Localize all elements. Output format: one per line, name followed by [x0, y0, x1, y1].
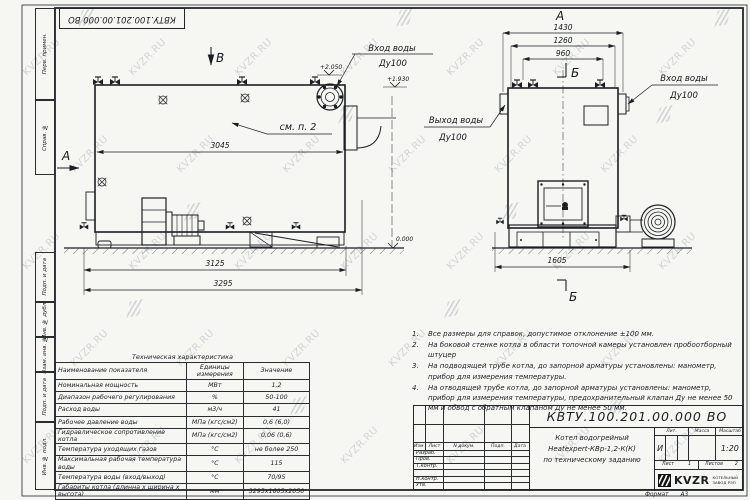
base-skid	[96, 232, 344, 248]
spec-row: Номинальная мощностьМВт1,2	[56, 380, 310, 392]
lug-icon	[155, 92, 172, 109]
margin-box-sprav-n: Справ. №	[35, 100, 55, 175]
lit-value: И	[655, 436, 666, 460]
elev-0000: 0.000	[396, 236, 413, 243]
title-block: Изм. Лист N докум. Подп. Дата Разраб. Пр…	[413, 405, 743, 490]
dim-1260: 1260	[553, 36, 572, 45]
spec-row: Диапазон рабочего регулирования%50-100	[56, 392, 310, 404]
margin-box-inv-dubl: Инв. № дубл.	[35, 302, 55, 337]
spec-row: Рабочее давление водыМПа (кгс/см2)0,6 (6…	[56, 416, 310, 428]
valve-icon	[93, 77, 103, 85]
burner-unit	[142, 198, 204, 245]
dim-3045: 3045	[210, 141, 229, 150]
valve-icon	[512, 80, 522, 88]
margin-box-inv-podl: Инв. № подл.	[35, 422, 55, 490]
corner-stamp-number: КВТУ.100.201.00.000 ВО	[68, 14, 176, 24]
callout-see-p2: см. п. 2	[280, 122, 317, 133]
valve-icon	[80, 223, 89, 230]
dim-1605: 1605	[547, 256, 566, 265]
section-label-b-top: Б	[571, 66, 579, 80]
inlet-dn-front: Ду100	[669, 91, 698, 101]
sampling-port	[584, 106, 608, 125]
format-label: ФорматА3	[645, 492, 700, 498]
title-block-right-section: Лит. Масса Масштаб И 1:20 Лист1 Листов2 …	[655, 428, 744, 491]
elev-1930: +1.930	[387, 76, 409, 83]
inlet-label-front: Вход воды	[660, 74, 708, 84]
boiler-body-side	[95, 85, 345, 232]
inlet-label-side: Вход воды	[368, 44, 416, 54]
valve-icon	[237, 77, 247, 85]
section-label-a: А	[61, 149, 70, 163]
inlet-flange	[317, 84, 343, 110]
valve-icon	[595, 80, 605, 88]
margin-box-podp-data-2: Подп. и дата	[35, 372, 55, 422]
corner-stamp: КВТУ.100.201.00.000 ВО	[59, 8, 185, 29]
inlet-flange	[618, 94, 626, 114]
spec-row: Температура воды (вход/выход)°С70/95	[56, 471, 310, 483]
dim-3295: 3295	[213, 279, 232, 288]
company-logo: KVZR КОТЕЛЬНЫЙ ЗАВОД РЭП	[655, 470, 744, 490]
valve-icon	[528, 80, 538, 88]
sheet-row: Лист1 Листов2	[655, 461, 744, 470]
scale-value: 1:20	[716, 436, 744, 460]
valve-icon	[110, 77, 120, 85]
dim-1430: 1430	[553, 23, 572, 32]
margin-box-perv-primen: Перв. примен.	[35, 8, 55, 100]
mass-value	[689, 436, 716, 460]
note-item: 2.На боковой стенке котла в области топо…	[412, 340, 734, 360]
lit-mass-scale-header: Лит. Масса Масштаб	[655, 428, 744, 436]
margin-box-podp-data-1: Подп. и дата	[35, 252, 55, 302]
section-label-b-bottom: Б	[569, 290, 577, 304]
valve-icon	[310, 77, 320, 85]
spec-table: Наименование показателя Единицы измерени…	[55, 362, 310, 500]
doc-number: КВТУ.100.201.00.000 ВО	[530, 406, 744, 428]
spec-row: Расход водым3/ч41	[56, 404, 310, 416]
view-label-b: В	[216, 51, 224, 65]
doc-title: Котел водогрейный Heatexpert-КВр-1,2-К(К…	[530, 428, 655, 491]
spec-row: Гидравлическое сопротивление котлаМПа (к…	[56, 428, 310, 443]
valve-icon	[292, 223, 301, 230]
dim-3125: 3125	[205, 259, 224, 268]
title-block-header-row: Изм. Лист N докум. Подп. Дата	[414, 443, 529, 451]
outlet-label: Выход воды	[429, 116, 483, 126]
spec-table-title: Техническая характеристика	[55, 353, 310, 361]
note-item: 1.Все размеры для справок, допустимое от…	[412, 329, 734, 339]
view-label-a: А	[555, 9, 564, 23]
valve-icon	[496, 218, 504, 224]
kvzr-logo-icon	[658, 474, 671, 487]
spec-header-row: Наименование показателя Единицы измерени…	[56, 363, 310, 380]
lug-icon	[237, 90, 254, 107]
notes: 1.Все размеры для справок, допустимое от…	[412, 329, 734, 414]
title-block-signature-section: Изм. Лист N докум. Подп. Дата Разраб. Пр…	[414, 406, 530, 491]
outlet-dn: Ду100	[438, 133, 467, 143]
drawing-sheet: KVZR.RUKVZR.RUKVZR.RUKVZR.RUKVZR.RUKVZR.…	[0, 0, 750, 500]
spec-row: Температура уходящих газов°Сне более 250	[56, 444, 310, 456]
margin-box-vzam-inv: Взам. инв. №	[35, 337, 55, 372]
lug-icon	[239, 213, 256, 230]
fan-blower	[616, 205, 675, 247]
lug-icon	[94, 174, 111, 191]
spec-row: Максимальная рабочая температура воды°С1…	[56, 456, 310, 471]
flue-duct	[344, 96, 396, 246]
furnace-door	[538, 181, 588, 227]
dim-960: 960	[556, 49, 571, 58]
inlet-dn-side: Ду100	[378, 59, 407, 69]
elev-2050: +2.050	[320, 64, 342, 71]
spec-row: Габариты котла (длинна х ширина х высота…	[56, 484, 310, 499]
left-view	[57, 47, 433, 295]
valve-icon	[226, 223, 235, 230]
note-item: 3.На подводящей трубе котла, до запорной…	[412, 361, 734, 381]
